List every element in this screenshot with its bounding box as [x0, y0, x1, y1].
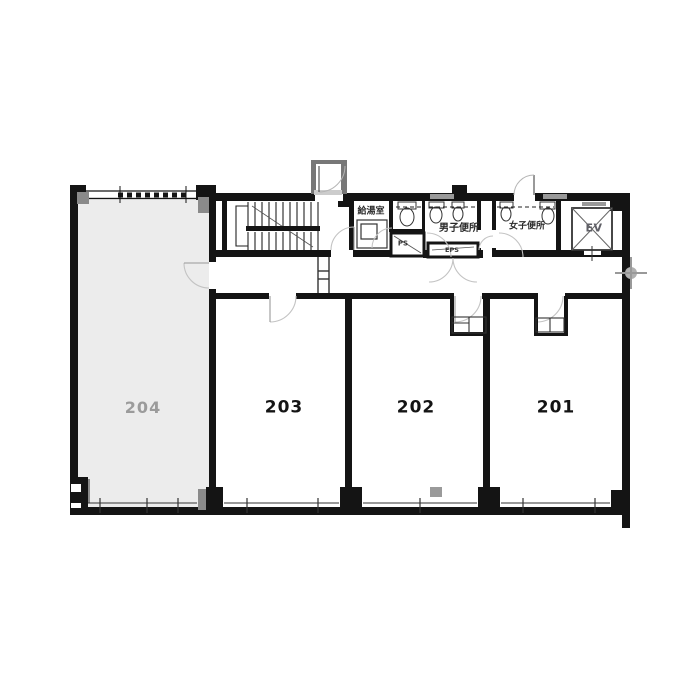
stair-handrail	[246, 226, 320, 231]
electrical-pipe-shaft-label: EPS	[445, 247, 459, 254]
pipe-shaft-label: PS	[398, 241, 408, 248]
room-204-area	[78, 197, 211, 507]
room-201-label: 201	[537, 400, 576, 417]
corridor-partition	[318, 257, 329, 293]
floor-plan-page: 204 203 202 201 給湯室 男子便所 女子便所 EV PS EPS	[0, 0, 700, 700]
entrance-vestibules	[450, 296, 568, 336]
room-divider-walls	[345, 296, 490, 491]
wall-marker-cross	[615, 257, 647, 289]
womens-exterior-door	[514, 175, 534, 195]
room-203-label: 203	[265, 400, 304, 417]
floor-plan-drawing	[0, 0, 700, 700]
room-204-walls	[209, 193, 216, 507]
stair-vestibule	[311, 160, 347, 195]
elevator-label: EV	[585, 223, 602, 234]
kitchenette-label: 給湯室	[357, 208, 384, 217]
room-202-label: 202	[397, 400, 436, 417]
womens-toilet-label: 女子便所	[509, 223, 545, 232]
mens-toilet-label: 男子便所	[439, 224, 479, 234]
room-204-label: 204	[125, 400, 161, 416]
